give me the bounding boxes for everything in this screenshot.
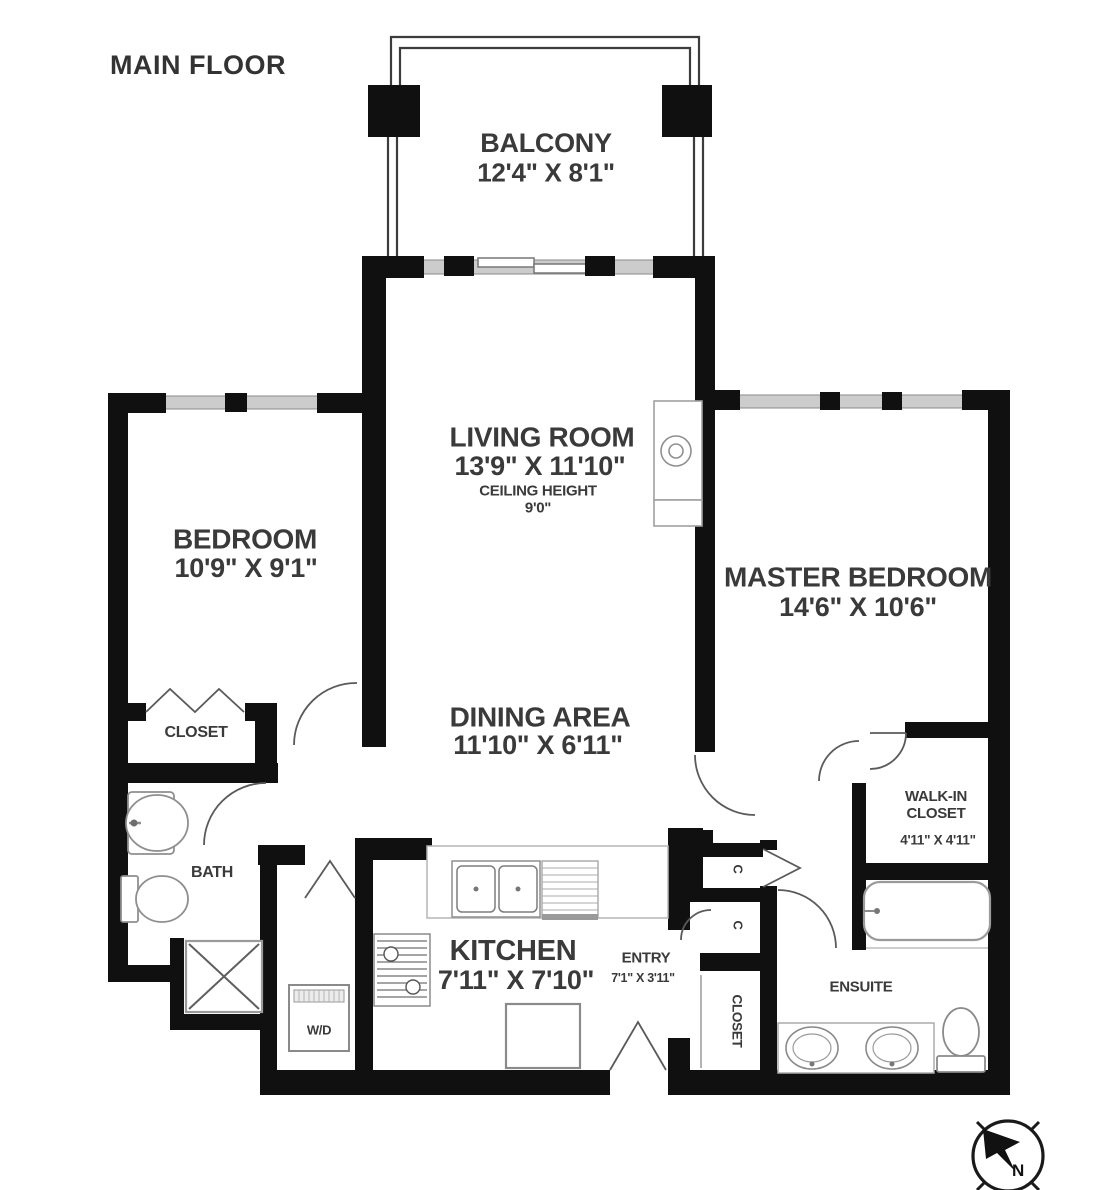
bedroom-label: BEDROOM [173,523,317,554]
ensuite-vanity [778,1023,934,1073]
kitchen-label: KITCHEN [450,935,577,967]
washer-dryer [289,985,349,1051]
fireplace [654,401,702,526]
kitchen-dims: 7'11" X 7'10" [438,965,594,995]
master-bedroom-label: MASTER BEDROOM [724,561,992,592]
page-title: MAIN FLOOR [110,50,286,81]
bedroom-dims: 10'9" X 9'1" [175,553,318,583]
cabinet2-label: C [730,920,745,929]
shower [186,941,262,1012]
master-bedroom-dims: 14'6" X 10'6" [779,592,937,622]
dishwasher [542,861,598,920]
compass-north-label: N [1012,1161,1024,1180]
walkin-closet-label: WALK-IN CLOSET [880,789,992,823]
walkin-closet-dims: 4'11" X 4'11" [900,832,975,847]
washer-dryer-label: W/D [307,1024,331,1039]
bathtub [864,882,990,948]
balcony-label: BALCONY [480,128,611,158]
ceiling-height-value: 9'0" [525,501,551,518]
stove [374,934,430,1006]
bath-toilet [121,876,188,922]
fridge [506,1004,580,1068]
kitchen-counter [427,846,668,920]
closet-label: CLOSET [164,724,227,742]
ensuite-toilet [937,1008,985,1072]
entry-dims: 7'1" X 3'11" [611,971,675,985]
floor-plan: N MAIN FLOOR BALCONY 12'4" X 8'1" LIVING… [0,0,1119,1190]
entry-closet-label: CLOSET [729,995,744,1048]
balcony-dims: 12'4" X 8'1" [477,158,615,187]
ceiling-height-label: CEILING HEIGHT [479,484,596,501]
ensuite-label: ENSUITE [830,980,893,997]
entry-label: ENTRY [622,951,671,968]
bath-sink [126,792,188,854]
bath-label: BATH [191,864,233,882]
living-room-dims: 13'9" X 11'10" [455,451,626,481]
compass-icon: N [973,1121,1043,1190]
living-room-label: LIVING ROOM [450,421,635,452]
windows [128,260,988,409]
dining-area-dims: 11'10" X 6'11" [453,730,622,760]
cabinet1-label: C [730,864,745,873]
dining-area-label: DINING AREA [450,701,631,732]
